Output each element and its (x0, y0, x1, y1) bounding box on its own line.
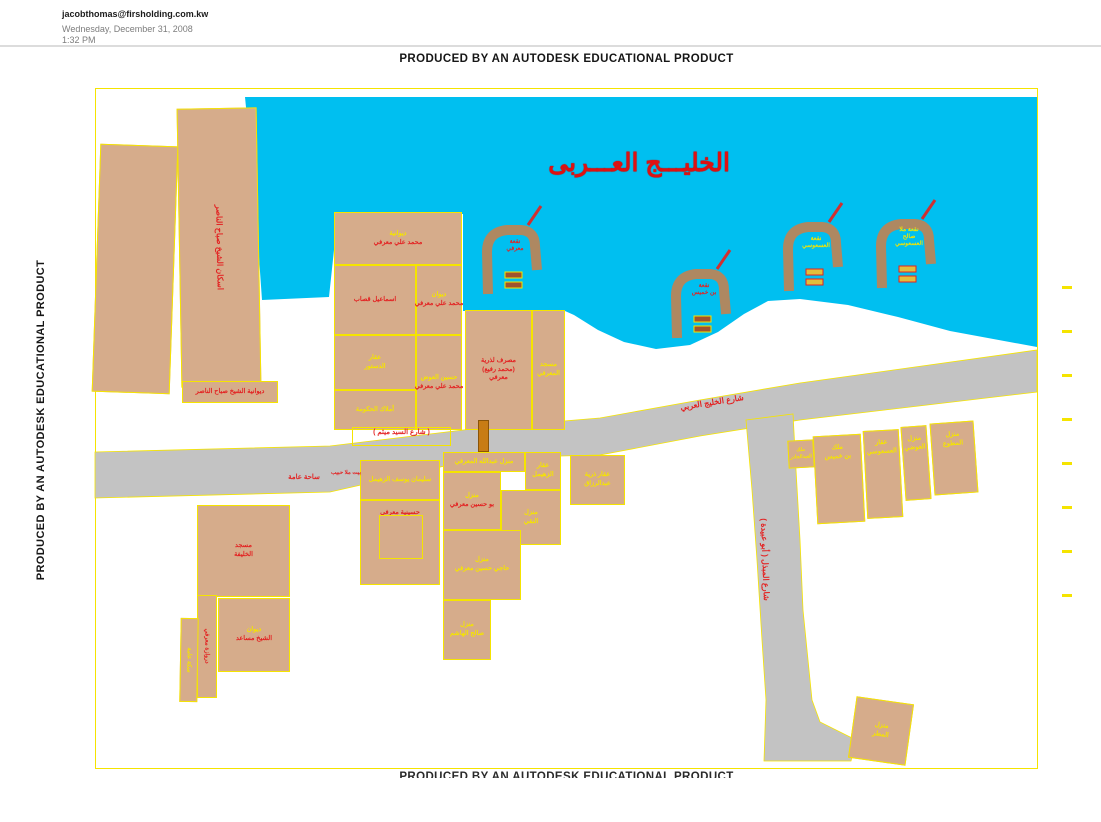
mulla-habib-house: بيت ملا حبيب (331, 470, 361, 476)
edge-tick-mark (1062, 594, 1072, 597)
plot-haji: منزلحاجي حسين معرفي (443, 530, 521, 600)
plot-govt: أملاك الحكومة (334, 390, 416, 430)
slab-left (92, 144, 179, 395)
autodesk-banner-bottom-text: PRODUCED BY AN AUTODESK EDUCATIONAL PROD… (399, 771, 733, 778)
autodesk-banner-bottom-clipped: PRODUCED BY AN AUTODESK EDUCATIONAL PROD… (95, 771, 1038, 778)
tower-foot-label: ديوانية الشيخ صباح الناصر (196, 388, 265, 397)
building-label-line: ديوان (236, 626, 272, 635)
diwan-sheikh-label: ديوانالشيخ مساعد (236, 626, 272, 644)
plot-rafie: مصرف لذرية(محمد رفيع)معرفي (465, 310, 532, 430)
plot-matar: منزلالمطر (848, 696, 914, 765)
building-label-line: حاجي حسين معرفي (455, 565, 510, 574)
building-label-line: منزل (450, 621, 484, 630)
pier-mulla-saleh-boat (899, 276, 916, 282)
plot-dastour: عقارالدستور (334, 335, 416, 390)
pier-mulla-saleh-boat (899, 266, 916, 272)
plot-abdullah-label: منزل عبدالله المعرفي (455, 458, 514, 467)
pier-label-line: نقعة (672, 282, 736, 289)
pier-label-line: صالح (877, 233, 941, 240)
pier-asousi-boat (806, 279, 823, 285)
mosque-khalifa-label: مسجدالخليفة (234, 542, 253, 560)
building-label-line: معرفي (481, 374, 516, 383)
building-label-line: الدستور (364, 363, 385, 372)
pier-label-line: نقعة (784, 235, 848, 242)
plot-binkhamis: ملكبن خميس (813, 434, 866, 524)
plot-zuhaimel-2: عقارالزهيمل (525, 452, 561, 490)
building-label-line: محمد علي معرفي (415, 383, 464, 392)
building-label-line: منزل (524, 509, 538, 518)
plot-bohussein-label: منزلبو حسين معرفي (450, 492, 494, 510)
building-label-line: بو حسين معرفي (450, 501, 494, 510)
plot-mosque-marafi-label: مسجدالمعرفي (537, 361, 560, 379)
building-label-line: المطوع (943, 439, 964, 449)
building-label-line: سكة عامة (185, 647, 194, 672)
building-label-line: الزهيمل (532, 471, 553, 480)
pier-binkhamis-boat (694, 326, 711, 332)
plot-zuhaimel-1: سليمان يوسف الزهيمل (360, 460, 440, 500)
plot-mosque-marafi: مسجدالمعرفي (532, 310, 565, 430)
mosque-khalifa: مسجدالخليفة (197, 505, 290, 597)
building-label-line: العسعوسي (867, 447, 898, 457)
building-label-line: عقار (364, 354, 385, 363)
building-label-line: المطر (872, 730, 890, 741)
seyed-maitham-street: ( شارع السيد ميثم ) (352, 427, 451, 446)
building-label-line: سليمان يوسف الزهيمل (369, 476, 431, 485)
public-square: ساحة عامة (276, 473, 332, 481)
plot-marafi-2-label: ديوانمحمد علي معرفي (415, 291, 464, 309)
building-label-line: مسجد (537, 361, 560, 370)
plot-zuhaimel-1-label: سليمان يوسف الزهيمل (369, 476, 431, 485)
pier-label-line: العسعوسي (877, 240, 941, 247)
plot-qassab-label: اسماعيل قصاب (354, 296, 396, 305)
building-label-line: عبدالرزاق (584, 480, 611, 489)
husseiniya: حسينية معرفي (360, 500, 440, 585)
plot-binkhamis-label: ملكبن خميس (824, 443, 851, 462)
pier-marafi-boat (505, 282, 522, 288)
pier-label-line: معرفي (483, 245, 547, 252)
plot-bohussein: منزلبو حسين معرفي (443, 472, 501, 530)
tower-label: اسكان الشيخ صباح الناصر (213, 205, 225, 290)
strip-darwaza-label: دروازة معرفي (203, 629, 211, 664)
building-label-line: أملاك الحكومة (356, 406, 394, 415)
building-label-line: (محمد رفيع) (481, 366, 516, 375)
cad-plot-page: jacobthomas@firsholding.com.kw Wednesday… (0, 0, 1101, 822)
tower-foot: ديوانية الشيخ صباح الناصر (182, 381, 278, 403)
plot-govt-label: أملاك الحكومة (356, 406, 394, 415)
plot-hashem: منزلصالح الهاشم (443, 600, 491, 660)
building-label-line: محمد علي معرفي (415, 300, 464, 309)
plot-qassab: اسماعيل قصاب (334, 265, 416, 335)
building-label-line: حسين العوض (415, 374, 464, 383)
plot-zuhaimel-2-label: عقارالزهيمل (532, 462, 553, 480)
plot-naqi-label: منزلالنقي (524, 509, 538, 527)
edge-tick-mark (1062, 506, 1072, 509)
building-label-line: بن خميس (824, 452, 851, 462)
pier-binkhamis-boat (694, 316, 711, 322)
building-label-line: العبدالجادر (790, 453, 812, 461)
sea-title-arabic-gulf: الخليـــج العـــربى (578, 148, 730, 178)
building-label-line: منزل (455, 556, 510, 565)
building-label-line: ديوانية الشيخ صباح الناصر (196, 388, 265, 397)
building-label-line: اسماعيل قصاب (354, 296, 396, 305)
building-label-line: عقار ذرية (584, 471, 611, 480)
building-label-line: اسكان الشيخ صباح الناصر (213, 205, 225, 290)
pier-binkhamis-label: نقعةبن خميس (672, 282, 736, 296)
building-label-line: منزل عبدالله المعرفي (455, 458, 514, 467)
plot-abdulrazzaq-label: عقار ذريةعبدالرزاق (584, 471, 611, 489)
building-label-line: دروازة معرفي (203, 629, 211, 664)
pier-asousi-boat (806, 269, 823, 275)
plot-abdullah: منزل عبدالله المعرفي (443, 452, 525, 472)
plot-dastour-label: عقارالدستور (364, 354, 385, 372)
building-label-line: عقار (532, 462, 553, 471)
plot-awadhi-label: منزلالعوضي (903, 434, 925, 453)
pier-marafi-boat (505, 272, 522, 278)
building-label-line: مسجد (234, 542, 253, 551)
edge-tick-mark (1062, 462, 1072, 465)
plot-asousi-label: عقارالعسعوسي (866, 438, 897, 457)
building-label-line: العوضي (904, 443, 926, 453)
building-label-line: مصرف لذرية (481, 357, 516, 366)
plot-abdulrazzaq: عقار ذريةعبدالرزاق (570, 455, 625, 505)
building-label-line: ديوان (415, 291, 464, 300)
building-label-line: المعرفي (537, 370, 560, 379)
building-label-line: الشيخ مساعد (236, 635, 272, 644)
diwan-sheikh: ديوانالشيخ مساعد (218, 598, 290, 672)
edge-tick-mark (1062, 330, 1072, 333)
plot-asousi: عقارالعسعوسي (863, 429, 904, 519)
building-label-line: محمد علي معرفي (374, 239, 423, 248)
plot-mutawa-label: منزلالمطوع (942, 430, 963, 449)
building-label-line: النقي (524, 518, 538, 527)
plot-abduljader-label: ملكالعبدالجادر (790, 447, 812, 462)
pier-marafi-label: نقعةمعرفي (483, 238, 547, 252)
pier-label-line: العسعوسي (784, 242, 848, 249)
building-label-line: صالح الهاشم (450, 630, 484, 639)
plot-marafi-1: ديوانيةمحمد علي معرفي (334, 212, 462, 265)
edge-tick-mark (1062, 286, 1072, 289)
plot-mutawa: منزلالمطوع (930, 421, 979, 496)
plot-rafie-label: مصرف لذرية(محمد رفيع)معرفي (481, 357, 516, 383)
pier-label-line: نقعة (483, 238, 547, 245)
strip-sikka-label: سكة عامة (185, 647, 194, 672)
strip-darwaza: دروازة معرفي (197, 595, 217, 698)
pier-asousi-label: نقعةالعسعوسي (784, 235, 848, 249)
plot-abduljader: ملكالعبدالجادر (787, 439, 814, 468)
edge-tick-mark (1062, 550, 1072, 553)
pier-label-line: نقعة ملا (877, 226, 941, 233)
strip-sikka: سكة عامة (179, 618, 198, 702)
road-gate-bar (478, 420, 489, 452)
plot-hashem-label: منزلصالح الهاشم (450, 621, 484, 639)
plot-marafi-1-label: ديوانيةمحمد علي معرفي (374, 230, 423, 248)
plot-awadhi: منزلالعوضي (900, 425, 931, 501)
pier-mulla-saleh-label: نقعة ملاصالحالعسعوسي (877, 226, 941, 247)
plot-matar-label: منزلالمطر (872, 721, 891, 741)
building-label-line: منزل (450, 492, 494, 501)
edge-tick-mark (1062, 374, 1072, 377)
husseiniya-inner-court (379, 515, 423, 559)
tower: اسكان الشيخ صباح الناصر (177, 107, 262, 387)
plot-haji-label: منزلحاجي حسين معرفي (455, 556, 510, 574)
plot-marafi-3: حسين العوضمحمد علي معرفي (416, 335, 462, 430)
building-label-line: الخليفة (234, 551, 253, 560)
building-label-line: ديوانية (374, 230, 423, 239)
plot-marafi-2: ديوانمحمد علي معرفي (416, 265, 462, 335)
pier-label-line: بن خميس (672, 289, 736, 296)
edge-tick-mark (1062, 418, 1072, 421)
plot-marafi-3-label: حسين العوضمحمد علي معرفي (415, 374, 464, 392)
